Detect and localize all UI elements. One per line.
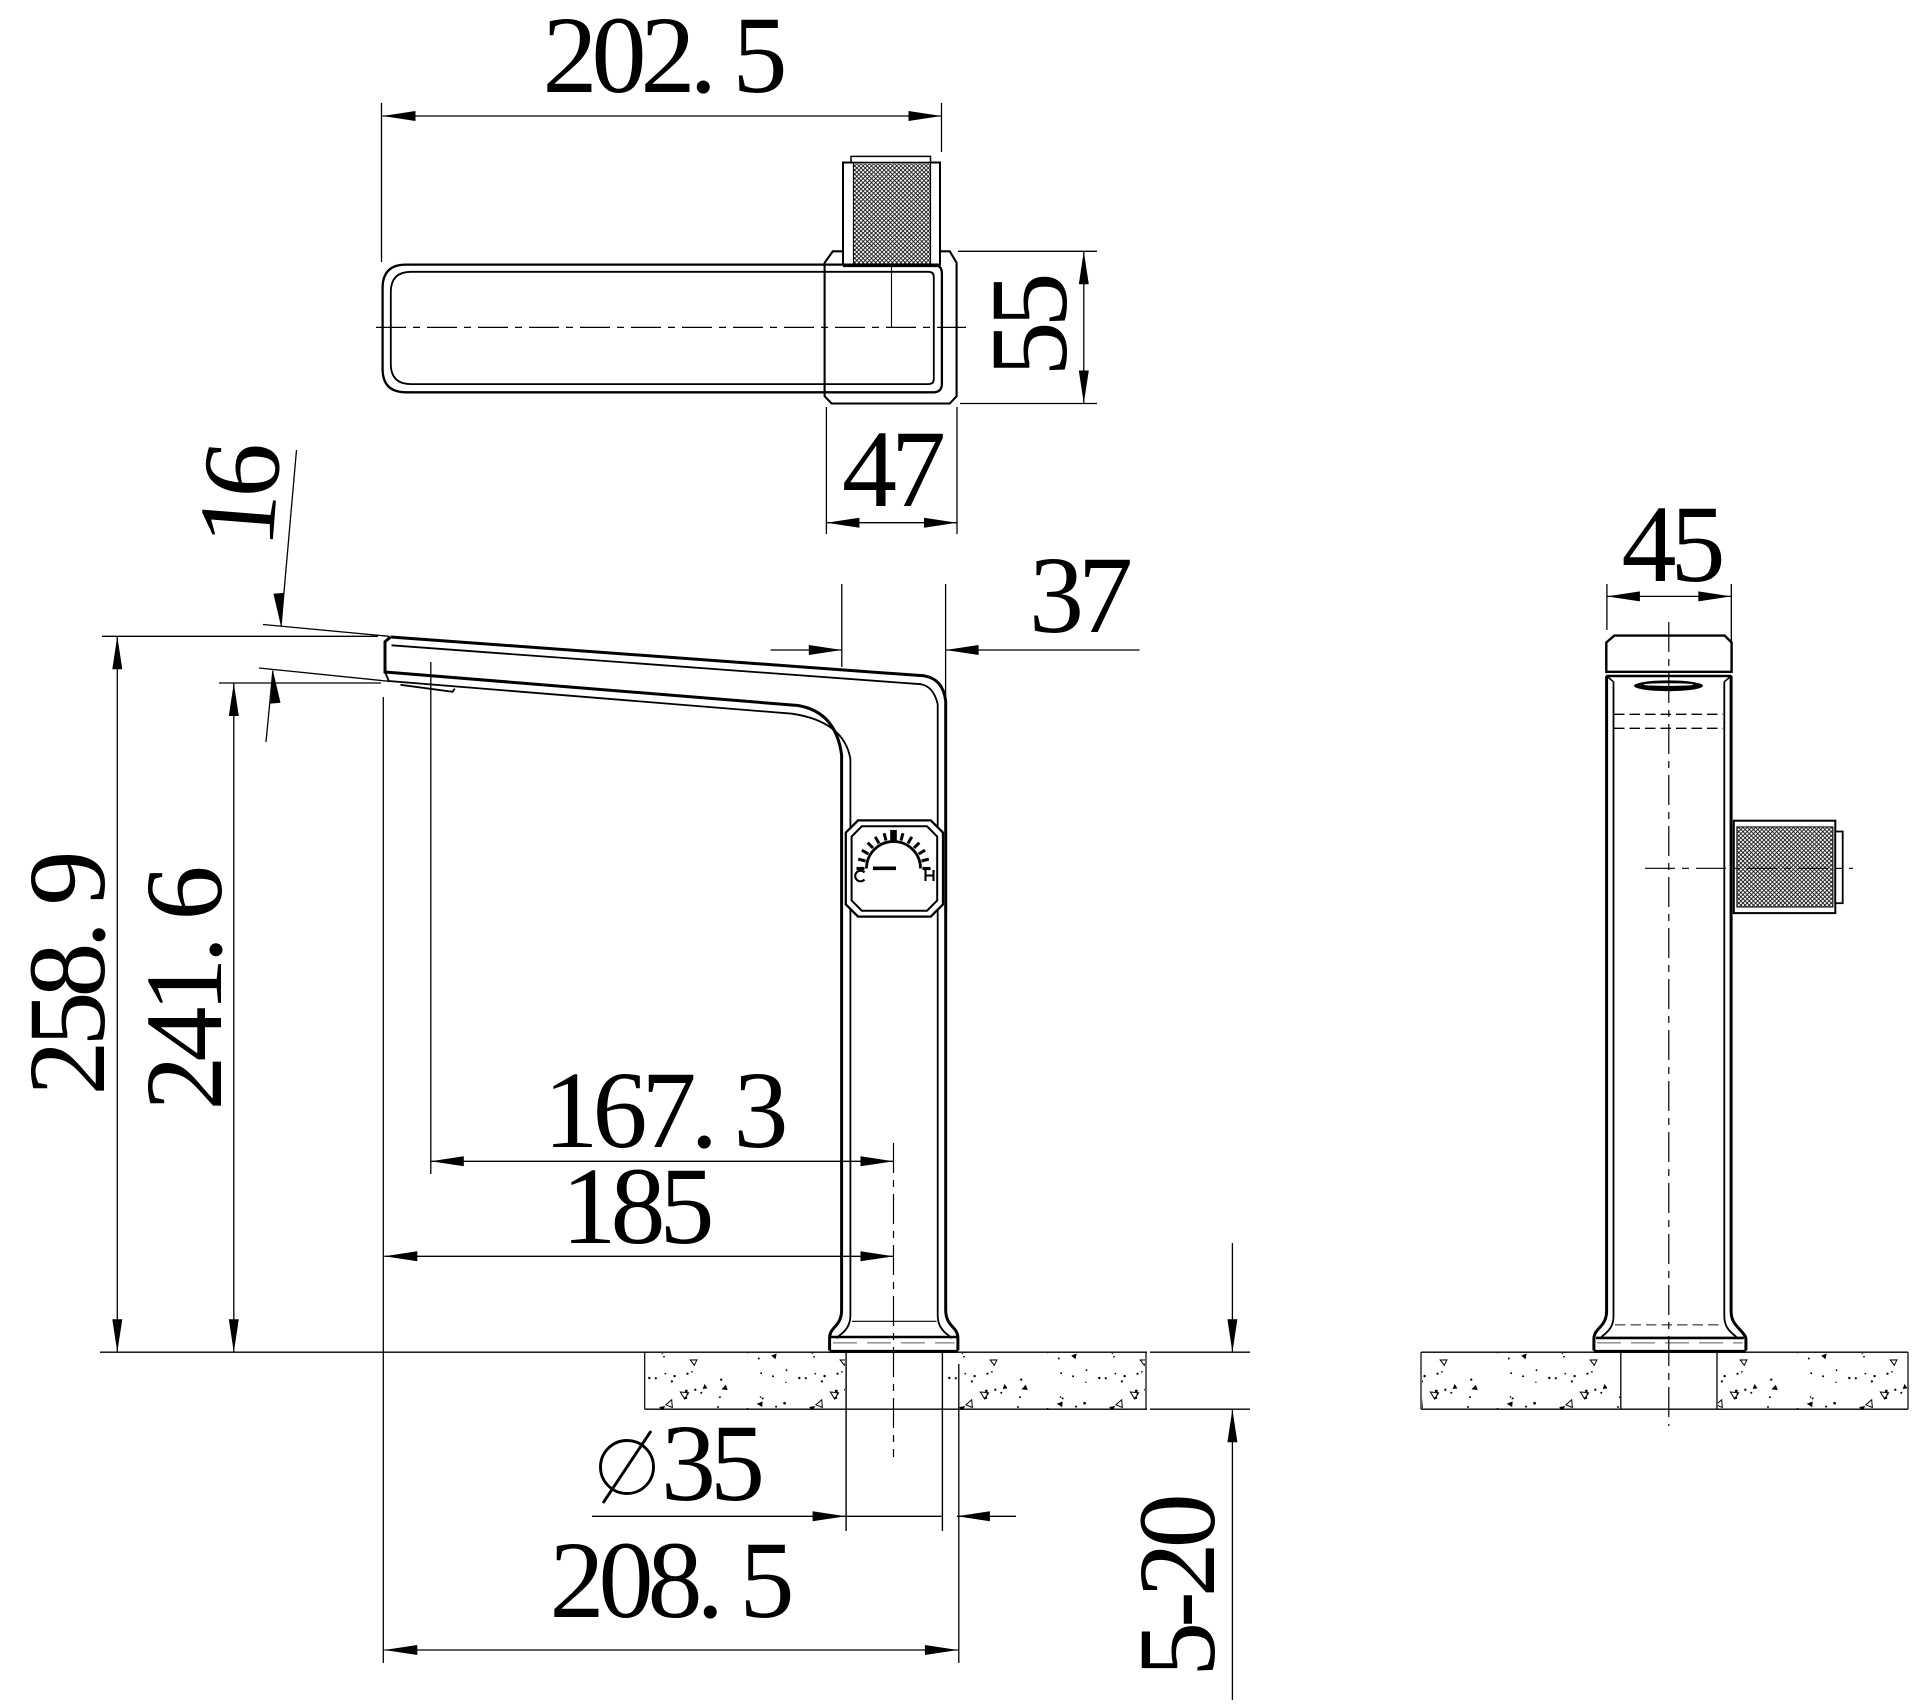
svg-text:208. 5: 208. 5 [550,1519,791,1641]
svg-text:258. 9: 258. 9 [6,855,128,1096]
svg-text:35: 35 [661,1402,761,1524]
svg-text:47: 47 [842,408,943,530]
svg-text:5-20: 5-20 [1116,1497,1238,1677]
svg-text:55: 55 [968,277,1090,377]
svg-text:16: 16 [174,440,304,550]
svg-text:202. 5: 202. 5 [543,0,784,116]
svg-text:185: 185 [562,1145,711,1267]
svg-text:45: 45 [1622,483,1722,605]
svg-text:37: 37 [1029,534,1130,656]
svg-text:241. 6: 241. 6 [123,869,245,1111]
